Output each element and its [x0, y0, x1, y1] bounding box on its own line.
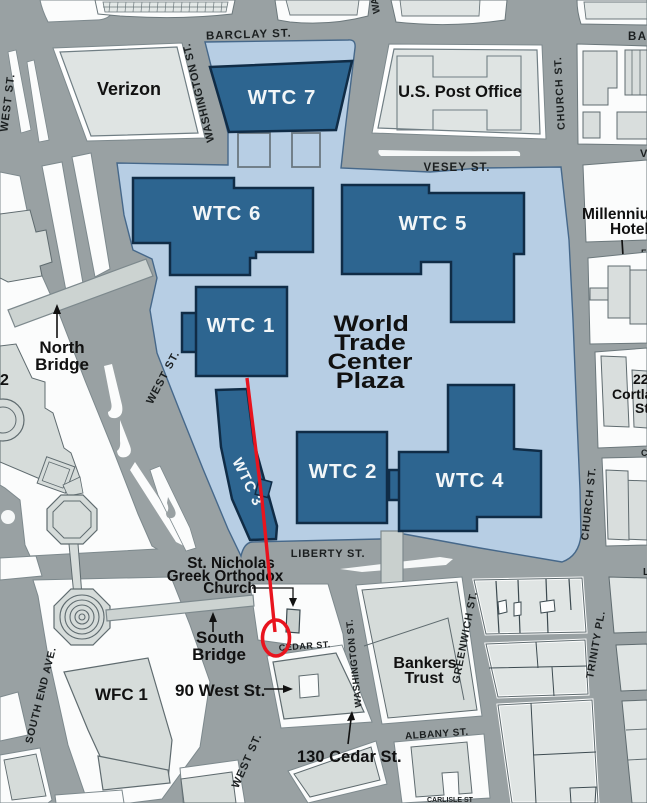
svg-text:BARCLAY: BARCLAY	[628, 31, 647, 43]
svg-text:C: C	[641, 448, 647, 458]
svg-text:2: 2	[0, 372, 9, 389]
svg-text:L: L	[643, 567, 647, 578]
svg-text:Plaza: Plaza	[336, 369, 405, 393]
svg-text:WTC 2: WTC 2	[309, 460, 378, 483]
svg-text:WFC 1: WFC 1	[95, 685, 148, 704]
svg-text:WTC 5: WTC 5	[399, 212, 468, 235]
svg-text:CARLISLE ST: CARLISLE ST	[427, 797, 474, 803]
svg-text:Hotel: Hotel	[610, 221, 647, 238]
svg-text:St.: St.	[635, 400, 647, 416]
svg-text:WA: WA	[369, 0, 383, 14]
svg-text:WTC 4: WTC 4	[436, 469, 505, 492]
svg-text:130 Cedar St.: 130 Cedar St.	[297, 748, 402, 766]
svg-text:WTC 6: WTC 6	[193, 202, 262, 225]
svg-text:Bridge: Bridge	[35, 355, 89, 374]
svg-text:Church: Church	[203, 580, 257, 597]
svg-text:WTC 7: WTC 7	[248, 86, 317, 109]
svg-text:WTC 1: WTC 1	[207, 314, 276, 337]
svg-text:Trust: Trust	[404, 670, 444, 687]
svg-text:VESEY ST.: VESEY ST.	[424, 162, 491, 174]
svg-text:Bridge: Bridge	[192, 645, 246, 664]
svg-text:Verizon: Verizon	[97, 79, 161, 99]
svg-text:VESEY: VESEY	[640, 148, 647, 160]
svg-text:U.S. Post Office: U.S. Post Office	[398, 83, 522, 101]
svg-text:22: 22	[633, 371, 647, 387]
svg-text:LIBERTY ST.: LIBERTY ST.	[291, 548, 366, 560]
svg-text:90 West St.: 90 West St.	[175, 681, 265, 700]
